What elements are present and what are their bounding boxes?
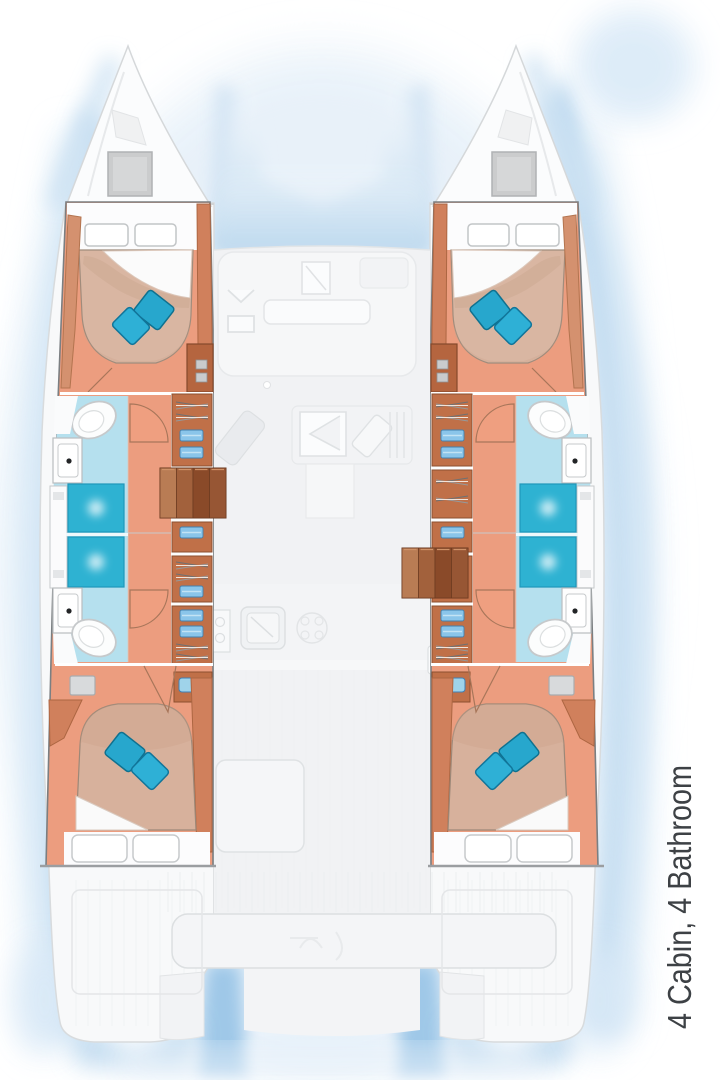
svg-text:4 Cabin, 4 Bathroom: 4 Cabin, 4 Bathroom xyxy=(661,765,698,1029)
